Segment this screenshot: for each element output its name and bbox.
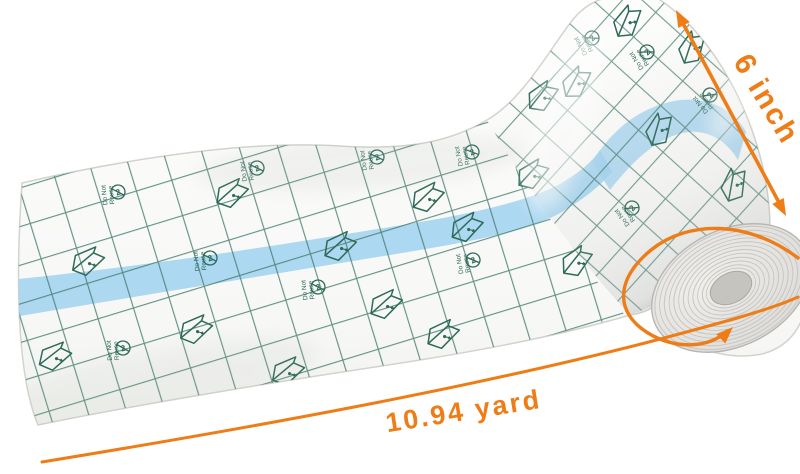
peel-liner-icon bbox=[337, 108, 377, 142]
do-not-reuse-label: Do NotReuse bbox=[380, 76, 397, 98]
do-not-reuse-label: Do NotReuse bbox=[100, 184, 116, 206]
do-not-reuse-label: Do NotReuse bbox=[106, 340, 121, 361]
product-photo: 2 Do NotReuseDo NotReuseDo NotReuseDo No… bbox=[0, 0, 800, 474]
do-not-reuse-label: Do NotReuse bbox=[304, 34, 321, 56]
do-not-reuse-icon: Do NotReuse bbox=[300, 28, 332, 58]
arrowhead-down-icon bbox=[772, 198, 791, 219]
peel-liner-icon bbox=[248, 41, 288, 75]
do-not-reuse-icon: Do NotReuse bbox=[376, 70, 408, 100]
tape-roll-illustration: 2 Do NotReuseDo NotReuseDo NotReuseDo No… bbox=[0, 0, 800, 474]
do-not-reuse-label: Do NotReuse bbox=[160, 72, 177, 94]
do-not-reuse-label: Do NotReuse bbox=[192, 250, 208, 272]
peel-liner-icon bbox=[432, 21, 472, 55]
do-not-reuse-label: Do NotReuse bbox=[300, 279, 316, 301]
do-not-reuse-icon: Do NotReuse bbox=[156, 66, 188, 96]
length-label: 10.94 yard bbox=[384, 384, 544, 438]
peel-liner-icon bbox=[120, 95, 160, 129]
